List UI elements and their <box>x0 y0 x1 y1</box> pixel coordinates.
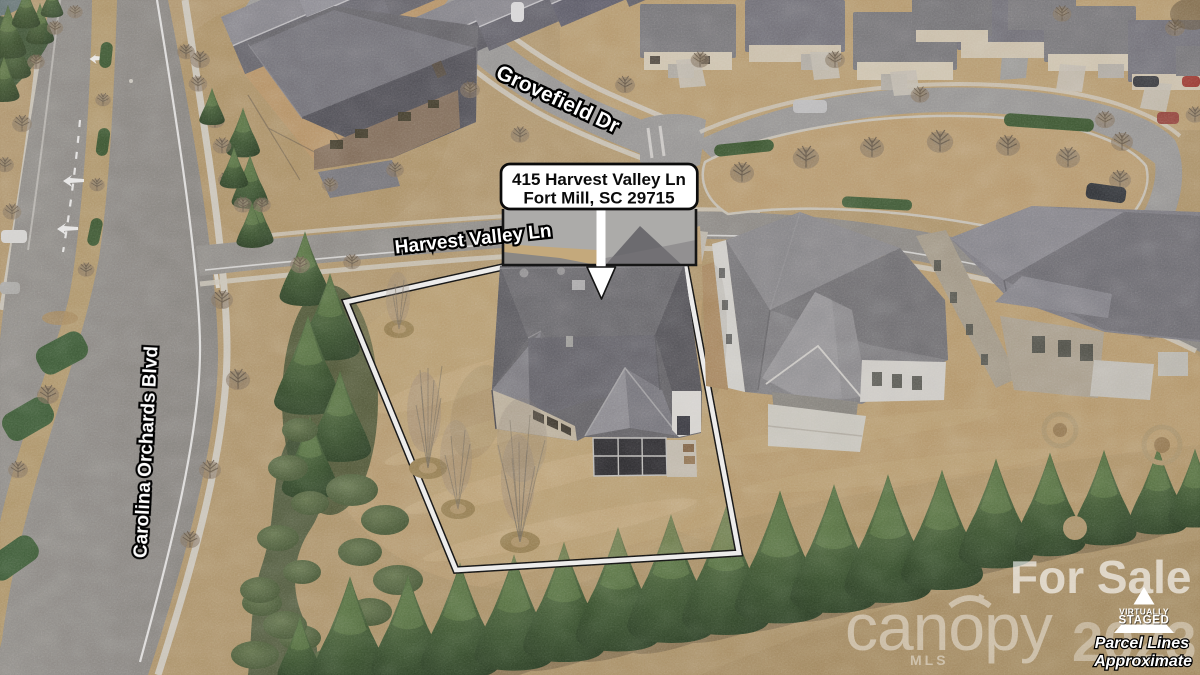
svg-text:Fort Mill, SC 29715: Fort Mill, SC 29715 <box>523 189 674 208</box>
svg-text:MLS: MLS <box>910 652 949 668</box>
svg-text:STAGED: STAGED <box>1118 614 1169 627</box>
svg-text:canopy: canopy <box>845 590 1053 664</box>
svg-text:415 Harvest Valley Ln: 415 Harvest Valley Ln <box>512 170 686 189</box>
svg-text:Approximate: Approximate <box>1093 653 1192 670</box>
svg-text:Parcel Lines: Parcel Lines <box>1095 635 1189 652</box>
